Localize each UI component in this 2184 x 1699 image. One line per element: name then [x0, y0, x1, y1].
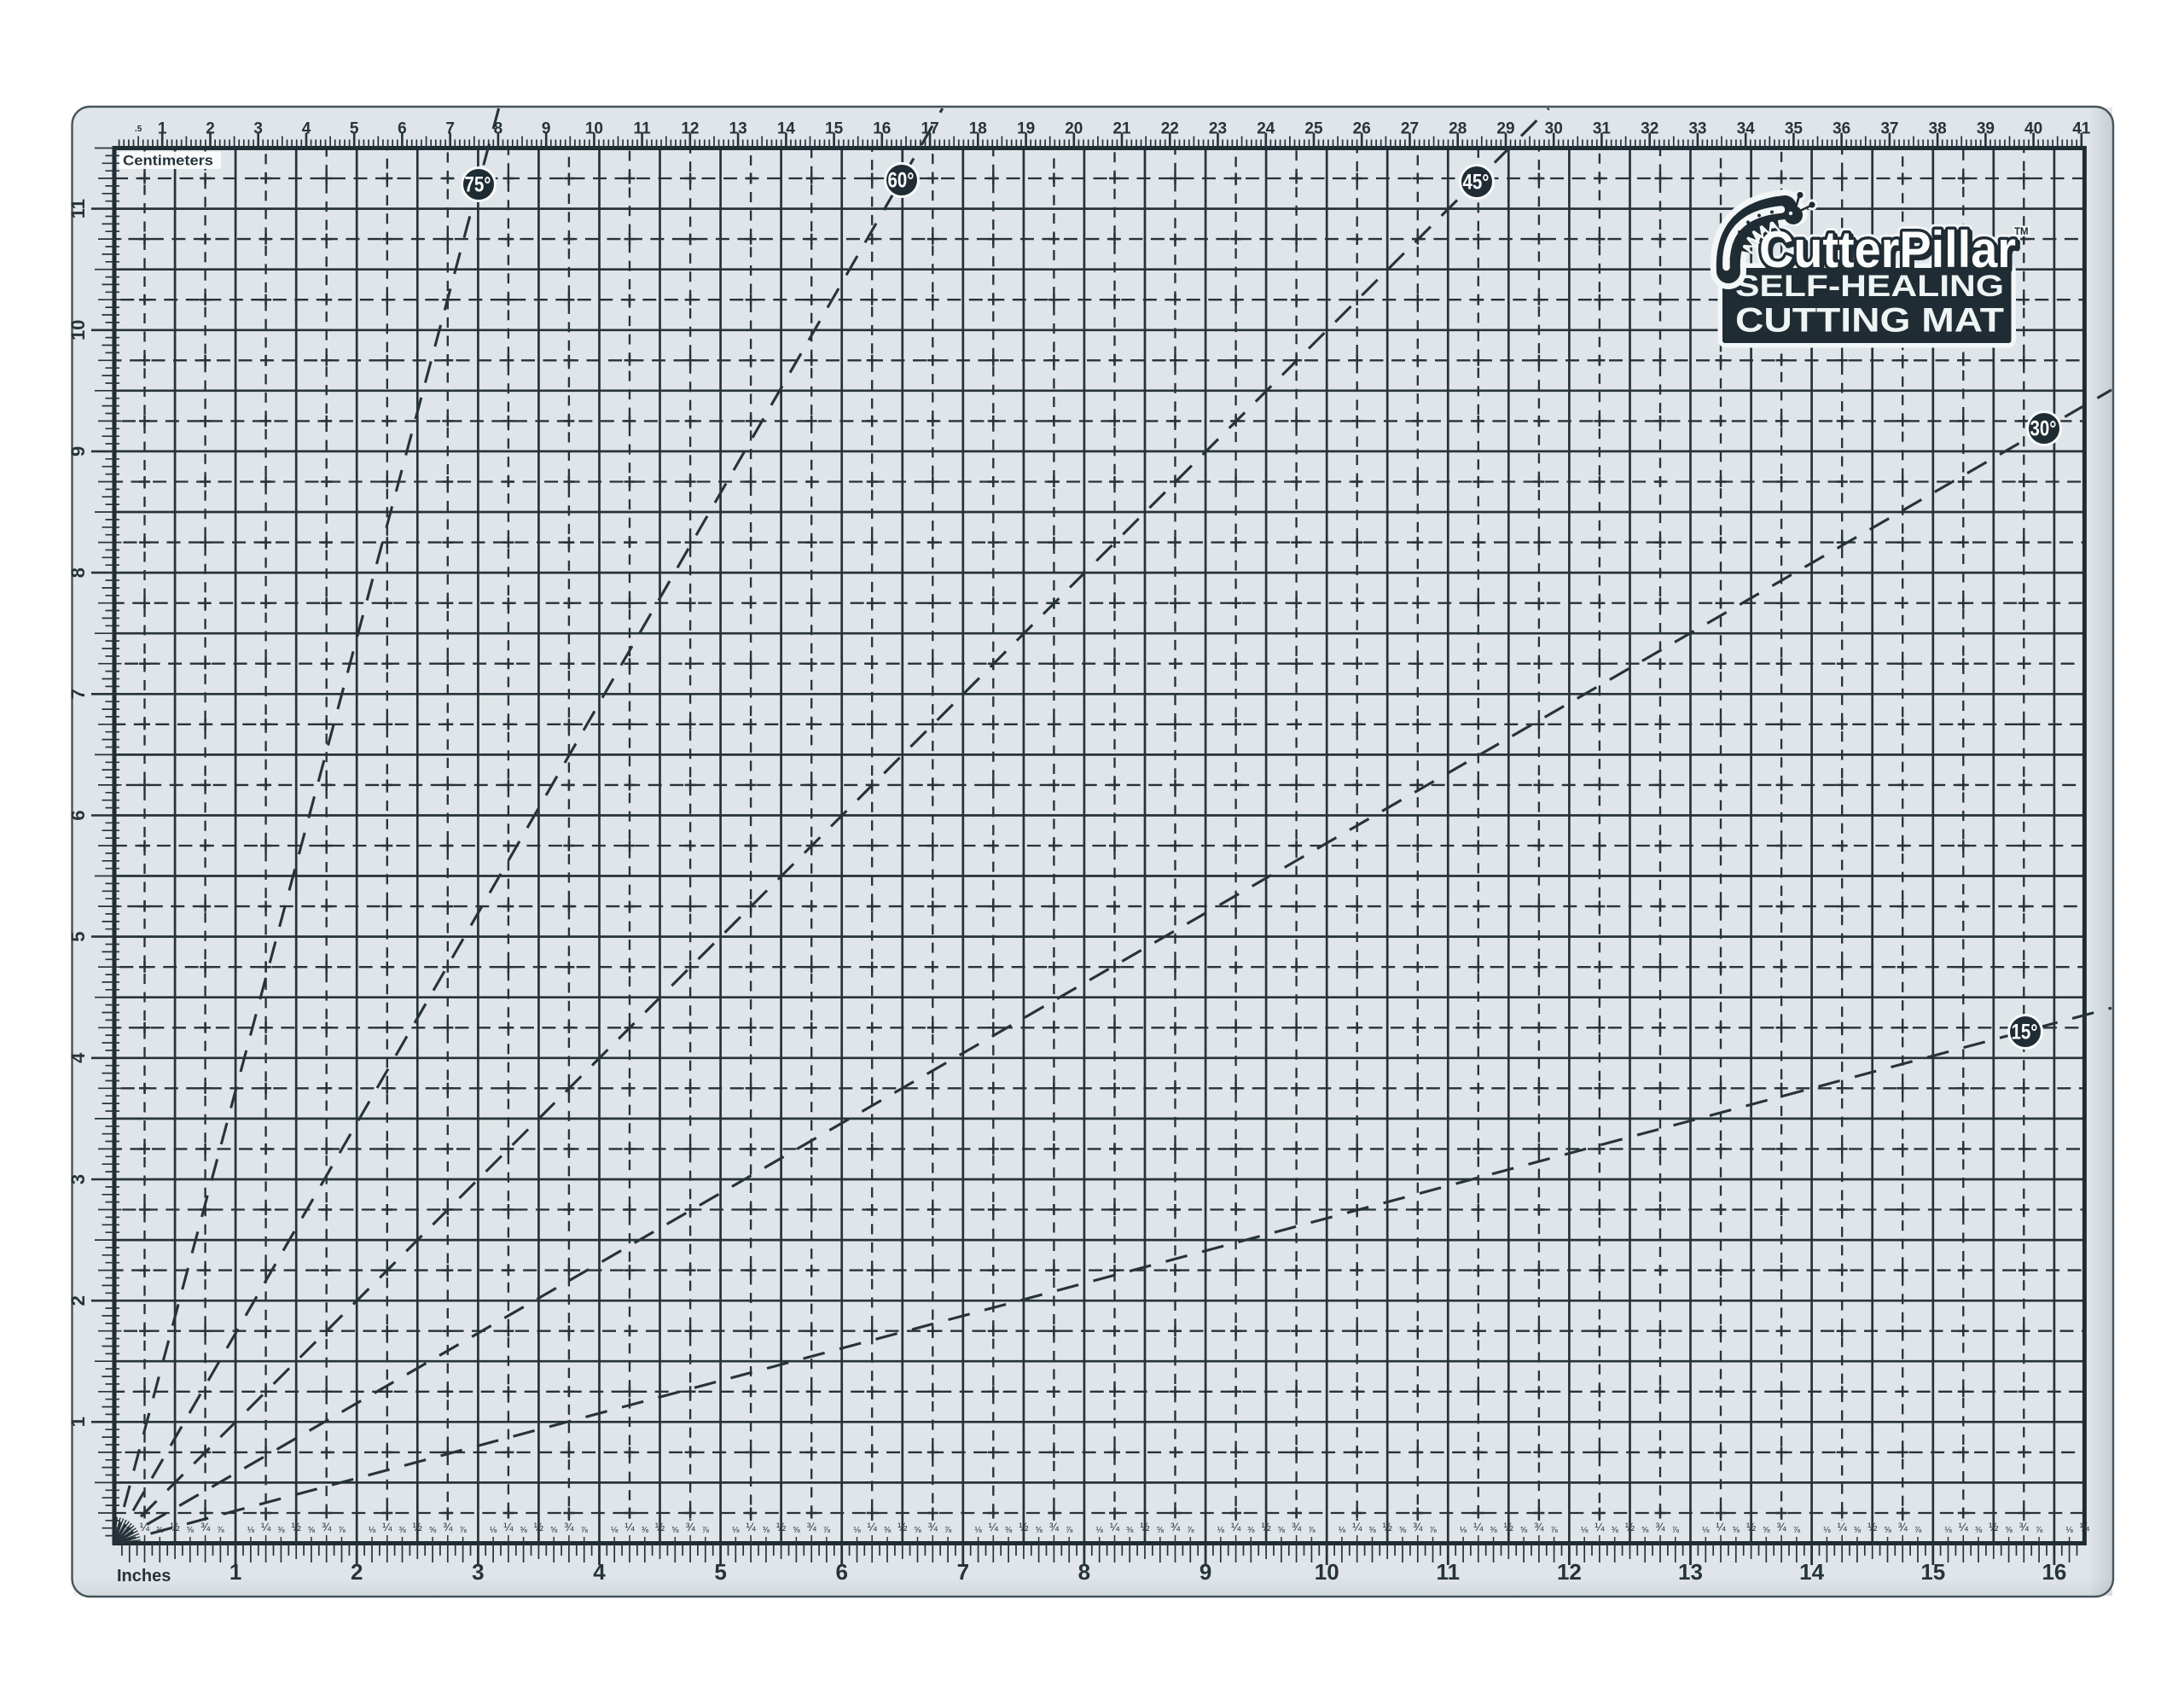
- svg-text:⅞: ⅞: [1187, 1526, 1194, 1535]
- svg-text:¾: ¾: [1776, 1521, 1786, 1533]
- svg-text:12: 12: [1557, 1559, 1582, 1585]
- svg-text:¼: ¼: [382, 1521, 392, 1533]
- svg-text:Centimeters: Centimeters: [123, 154, 213, 169]
- svg-text:.5: .5: [135, 125, 142, 134]
- svg-text:⅜: ⅜: [277, 1526, 285, 1535]
- svg-text:7: 7: [445, 120, 455, 138]
- svg-text:⅝: ⅝: [1399, 1526, 1407, 1535]
- svg-text:¾: ¾: [2019, 1521, 2030, 1533]
- svg-text:5: 5: [714, 1559, 726, 1585]
- svg-text:¼: ¼: [989, 1521, 999, 1533]
- svg-text:⅞: ⅞: [459, 1526, 467, 1535]
- svg-text:½: ½: [292, 1521, 301, 1533]
- svg-text:⅞: ⅞: [1429, 1526, 1437, 1535]
- svg-text:1: 1: [158, 120, 167, 138]
- svg-text:¼: ¼: [2080, 1521, 2090, 1533]
- svg-text:13: 13: [729, 120, 747, 138]
- svg-text:⅜: ⅜: [1005, 1526, 1013, 1535]
- svg-text:¼: ¼: [1838, 1521, 1848, 1533]
- svg-text:14: 14: [1799, 1559, 1824, 1585]
- svg-text:⅛: ⅛: [1944, 1526, 1952, 1535]
- svg-text:¼: ¼: [1352, 1521, 1362, 1533]
- svg-text:¼: ¼: [1110, 1521, 1120, 1533]
- svg-text:⅞: ⅞: [823, 1526, 831, 1535]
- svg-text:⅝: ⅝: [1641, 1526, 1649, 1535]
- svg-text:30°: 30°: [2030, 417, 2057, 441]
- svg-text:30: 30: [1545, 120, 1563, 138]
- svg-text:¼: ¼: [261, 1521, 271, 1533]
- svg-text:23: 23: [1209, 120, 1227, 138]
- svg-text:⅜: ⅜: [642, 1526, 649, 1535]
- svg-text:13: 13: [1678, 1559, 1703, 1585]
- svg-text:¼: ¼: [1959, 1521, 1969, 1533]
- svg-text:12: 12: [681, 120, 699, 138]
- svg-text:⅜: ⅜: [520, 1526, 527, 1535]
- svg-text:⅜: ⅜: [1854, 1526, 1862, 1535]
- svg-text:22: 22: [1161, 120, 1179, 138]
- svg-text:17: 17: [921, 120, 939, 138]
- svg-text:¼: ¼: [1473, 1521, 1484, 1533]
- svg-text:½: ½: [1019, 1521, 1028, 1533]
- svg-text:⅛: ⅛: [1823, 1526, 1831, 1535]
- svg-text:4: 4: [67, 1052, 89, 1063]
- svg-text:¼: ¼: [1231, 1521, 1241, 1533]
- svg-text:¼: ¼: [868, 1521, 878, 1533]
- svg-text:7: 7: [957, 1559, 969, 1585]
- svg-text:18: 18: [969, 120, 987, 138]
- svg-text:⅝: ⅝: [1035, 1526, 1043, 1535]
- svg-text:½: ½: [170, 1521, 179, 1533]
- svg-text:¾: ¾: [928, 1521, 938, 1533]
- svg-text:34: 34: [1737, 120, 1756, 138]
- svg-text:¾: ¾: [1413, 1521, 1423, 1533]
- svg-text:Inches: Inches: [117, 1567, 171, 1586]
- svg-text:⅞: ⅞: [1672, 1526, 1680, 1535]
- svg-text:⅛: ⅛: [1702, 1526, 1710, 1535]
- svg-text:⅞: ⅞: [1308, 1526, 1316, 1535]
- svg-text:45°: 45°: [1463, 171, 1490, 195]
- svg-text:¼: ¼: [624, 1521, 635, 1533]
- svg-text:⅞: ⅞: [944, 1526, 952, 1535]
- svg-text:4: 4: [302, 120, 311, 138]
- svg-text:⅜: ⅜: [156, 1526, 164, 1535]
- svg-text:32: 32: [1641, 120, 1658, 138]
- svg-text:25: 25: [1304, 120, 1323, 138]
- svg-text:10: 10: [1315, 1559, 1339, 1585]
- svg-text:¼: ¼: [1716, 1521, 1726, 1533]
- svg-text:⅛: ⅛: [1581, 1526, 1589, 1535]
- svg-text:⅜: ⅜: [1975, 1526, 1983, 1535]
- svg-text:⅞: ⅞: [1793, 1526, 1801, 1535]
- svg-text:⅝: ⅝: [1884, 1526, 1891, 1535]
- svg-text:⅜: ⅜: [1247, 1526, 1255, 1535]
- svg-text:1: 1: [229, 1559, 241, 1585]
- svg-text:⅝: ⅝: [429, 1526, 437, 1535]
- svg-text:¼: ¼: [140, 1521, 150, 1533]
- svg-text:⅜: ⅜: [884, 1526, 892, 1535]
- svg-text:41: 41: [2072, 120, 2091, 138]
- svg-text:⅝: ⅝: [1763, 1526, 1770, 1535]
- svg-text:½: ½: [1746, 1521, 1756, 1533]
- svg-text:¾: ¾: [1170, 1521, 1181, 1533]
- svg-text:4: 4: [593, 1559, 606, 1585]
- svg-text:33: 33: [1688, 120, 1706, 138]
- svg-text:½: ½: [1261, 1521, 1270, 1533]
- svg-text:⅜: ⅜: [398, 1526, 406, 1535]
- svg-text:⅞: ⅞: [217, 1526, 224, 1535]
- svg-text:10: 10: [67, 320, 89, 340]
- svg-text:⅛: ⅛: [490, 1526, 497, 1535]
- svg-text:31: 31: [1593, 120, 1612, 138]
- svg-text:1: 1: [67, 1417, 89, 1427]
- svg-text:⅞: ⅞: [1550, 1526, 1558, 1535]
- svg-text:¾: ¾: [807, 1521, 817, 1533]
- svg-text:⅝: ⅝: [914, 1526, 921, 1535]
- svg-text:⅞: ⅞: [1066, 1526, 1073, 1535]
- svg-text:29: 29: [1496, 120, 1514, 138]
- svg-text:⅛: ⅛: [247, 1526, 255, 1535]
- svg-text:⅝: ⅝: [2005, 1526, 2013, 1535]
- svg-text:⅛: ⅛: [2065, 1526, 2073, 1535]
- svg-text:⅞: ⅞: [338, 1526, 346, 1535]
- svg-text:11: 11: [67, 199, 89, 218]
- svg-text:⅛: ⅛: [732, 1526, 740, 1535]
- svg-text:⅛: ⅛: [1460, 1526, 1467, 1535]
- svg-text:½: ½: [1140, 1521, 1149, 1533]
- svg-text:⅛: ⅛: [974, 1526, 982, 1535]
- svg-text:21: 21: [1112, 120, 1131, 138]
- svg-text:½: ½: [1989, 1521, 1998, 1533]
- svg-text:¾: ¾: [685, 1521, 695, 1533]
- svg-text:½: ½: [1504, 1521, 1513, 1533]
- svg-text:7: 7: [67, 689, 89, 699]
- svg-text:14: 14: [777, 120, 796, 138]
- svg-text:⅜: ⅜: [1733, 1526, 1740, 1535]
- svg-text:¾: ¾: [1292, 1521, 1302, 1533]
- svg-text:CUTTING MAT: CUTTING MAT: [1735, 302, 2004, 340]
- svg-text:⅝: ⅝: [1157, 1526, 1165, 1535]
- svg-text:CutterPillar: CutterPillar: [1759, 221, 2016, 278]
- svg-text:75°: 75°: [465, 173, 491, 197]
- svg-text:⅞: ⅞: [702, 1526, 710, 1535]
- svg-text:¾: ¾: [443, 1521, 453, 1533]
- svg-text:⅞: ⅞: [581, 1526, 589, 1535]
- svg-text:⅜: ⅜: [1612, 1526, 1619, 1535]
- svg-text:⅛: ⅛: [369, 1526, 376, 1535]
- svg-text:35: 35: [1785, 120, 1804, 138]
- svg-text:3: 3: [67, 1174, 89, 1184]
- svg-text:40: 40: [2024, 120, 2042, 138]
- svg-text:24: 24: [1257, 120, 1275, 138]
- svg-text:⅛: ⅛: [1096, 1526, 1104, 1535]
- svg-text:⅝: ⅝: [793, 1526, 800, 1535]
- svg-text:3: 3: [472, 1559, 484, 1585]
- svg-text:½: ½: [1867, 1521, 1877, 1533]
- svg-text:6: 6: [67, 810, 89, 820]
- svg-text:8: 8: [494, 120, 503, 138]
- svg-text:11: 11: [1437, 1559, 1461, 1585]
- svg-text:⅛: ⅛: [1217, 1526, 1225, 1535]
- svg-text:16: 16: [873, 120, 891, 138]
- svg-text:8: 8: [1078, 1559, 1090, 1585]
- svg-text:38: 38: [1929, 120, 1947, 138]
- svg-text:6: 6: [835, 1559, 847, 1585]
- svg-text:½: ½: [534, 1521, 543, 1533]
- svg-text:8: 8: [67, 567, 89, 578]
- svg-text:⅜: ⅜: [1126, 1526, 1134, 1535]
- svg-text:28: 28: [1449, 120, 1467, 138]
- svg-text:¾: ¾: [200, 1521, 211, 1533]
- svg-text:¾: ¾: [1534, 1521, 1544, 1533]
- svg-text:6: 6: [398, 120, 407, 138]
- svg-text:⅜: ⅜: [1490, 1526, 1497, 1535]
- svg-text:½: ½: [655, 1521, 665, 1533]
- svg-text:½: ½: [413, 1521, 422, 1533]
- svg-text:2: 2: [67, 1295, 89, 1306]
- svg-text:19: 19: [1017, 120, 1035, 138]
- svg-text:16: 16: [2042, 1559, 2066, 1585]
- svg-text:½: ½: [1383, 1521, 1392, 1533]
- svg-text:26: 26: [1353, 120, 1371, 138]
- svg-text:2: 2: [351, 1559, 363, 1585]
- svg-text:¾: ¾: [564, 1521, 574, 1533]
- svg-text:20: 20: [1065, 120, 1083, 138]
- svg-text:9: 9: [542, 120, 551, 138]
- svg-text:36: 36: [1833, 120, 1850, 138]
- svg-text:11: 11: [634, 120, 652, 138]
- svg-text:⅝: ⅝: [1520, 1526, 1528, 1535]
- svg-text:¼: ¼: [1594, 1521, 1605, 1533]
- svg-text:⅝: ⅝: [1278, 1526, 1286, 1535]
- svg-text:¾: ¾: [1898, 1521, 1908, 1533]
- svg-text:½: ½: [1625, 1521, 1635, 1533]
- svg-text:⅛: ⅛: [126, 1526, 134, 1535]
- svg-text:9: 9: [67, 446, 89, 457]
- svg-text:15°: 15°: [2012, 1021, 2038, 1044]
- svg-text:¼: ¼: [746, 1521, 756, 1533]
- svg-text:3: 3: [253, 120, 263, 138]
- svg-text:5: 5: [350, 120, 359, 138]
- svg-text:⅛: ⅛: [1339, 1526, 1346, 1535]
- svg-text:⅝: ⅝: [671, 1526, 679, 1535]
- svg-text:15: 15: [825, 120, 844, 138]
- svg-text:⅜: ⅜: [763, 1526, 770, 1535]
- svg-text:⅝: ⅝: [308, 1526, 316, 1535]
- svg-text:39: 39: [1977, 120, 1995, 138]
- svg-text:⅞: ⅞: [1914, 1526, 1922, 1535]
- svg-text:⅝: ⅝: [187, 1526, 195, 1535]
- svg-text:27: 27: [1401, 120, 1419, 138]
- svg-text:⅞: ⅞: [2036, 1526, 2043, 1535]
- svg-text:5: 5: [67, 931, 89, 941]
- svg-text:⅛: ⅛: [611, 1526, 619, 1535]
- svg-text:10: 10: [585, 120, 603, 138]
- svg-text:⅝: ⅝: [550, 1526, 558, 1535]
- svg-text:⅛: ⅛: [853, 1526, 861, 1535]
- svg-text:2: 2: [206, 120, 215, 138]
- svg-text:15: 15: [1920, 1559, 1945, 1585]
- svg-text:¾: ¾: [1655, 1521, 1665, 1533]
- svg-text:½: ½: [897, 1521, 907, 1533]
- svg-text:60°: 60°: [888, 169, 915, 193]
- svg-text:TM: TM: [2014, 227, 2029, 237]
- svg-text:¾: ¾: [322, 1521, 332, 1533]
- svg-text:½: ½: [776, 1521, 786, 1533]
- svg-text:¼: ¼: [503, 1521, 514, 1533]
- svg-text:9: 9: [1199, 1559, 1211, 1585]
- svg-text:¾: ¾: [1049, 1521, 1060, 1533]
- svg-text:37: 37: [1880, 120, 1898, 138]
- svg-text:⅜: ⅜: [1368, 1526, 1376, 1535]
